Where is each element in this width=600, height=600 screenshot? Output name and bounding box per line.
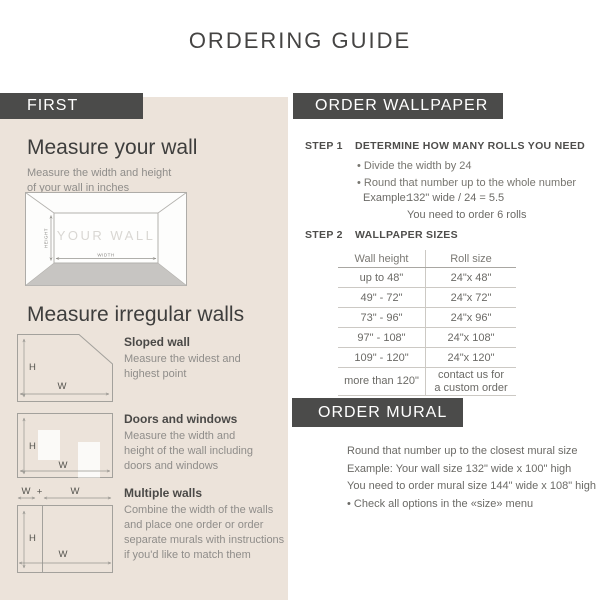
table-row: up to 48" 24"x 48" — [338, 268, 516, 288]
table-cell: 24"x 72" — [426, 288, 516, 307]
page-title: ORDERING GUIDE — [0, 28, 600, 54]
table-cell: contact us for a custom order — [426, 368, 516, 395]
table-cell: 97" - 108" — [338, 328, 426, 347]
table-cell: 24"x 120" — [426, 348, 516, 367]
table-cell: 24"x 96" — [426, 308, 516, 327]
wallpaper-sizes-table: Wall height Roll size up to 48" 24"x 48"… — [338, 250, 516, 396]
height-label: HEIGHT — [44, 228, 49, 248]
multiple-h-label: H — [29, 533, 36, 544]
step1-label: STEP 1 — [305, 140, 343, 152]
floor-shape — [26, 263, 187, 286]
doors-windows-diagram: H W — [17, 413, 113, 478]
order-wallpaper-band: ORDER WALLPAPER — [293, 93, 503, 119]
step1-bullet-2: • Round that number up to the whole numb… — [357, 175, 576, 192]
table-row: more than 120" contact us for a custom o… — [338, 368, 516, 396]
table-header-roll-size: Roll size — [426, 250, 516, 267]
sloped-wall-label: Sloped wall — [124, 335, 190, 349]
doors-w-label: W — [59, 460, 68, 471]
mural-line-1: Round that number up to the closest mura… — [347, 443, 596, 461]
multiple-walls-body: Combine the width of the walls and place… — [124, 503, 284, 563]
table-cell: up to 48" — [338, 268, 426, 287]
measure-wall-heading: Measure your wall — [27, 136, 197, 160]
wall-perspective-diagram: YOUR WALL HEIGHT WIDTH — [25, 192, 187, 286]
step1-example-value: 132" wide / 24 = 5.5 — [407, 192, 504, 204]
first-section-band: FIRST — [0, 93, 143, 119]
sloped-w-label: W — [58, 381, 67, 392]
width-label: WIDTH — [97, 253, 114, 258]
order-mural-band: ORDER MURAL — [292, 398, 463, 427]
mural-instructions: Round that number up to the closest mura… — [347, 443, 596, 513]
step1-title: DETERMINE HOW MANY ROLLS YOU NEED — [355, 140, 585, 152]
mural-line-4: • Check all options in the «size» menu — [347, 496, 596, 514]
table-cell: 24"x 108" — [426, 328, 516, 347]
doors-h-label: H — [29, 441, 36, 452]
table-row: 49" - 72" 24"x 72" — [338, 288, 516, 308]
order-mural-label: ORDER MURAL — [318, 404, 447, 422]
mural-line-2: Example: Your wall size 132" wide x 100"… — [347, 461, 596, 479]
table-cell: more than 120" — [338, 368, 426, 395]
table-header-row: Wall height Roll size — [338, 250, 516, 268]
multiple-walls-diagram: W + W H W — [17, 485, 113, 575]
table-cell: 73" - 96" — [338, 308, 426, 327]
step1-example-note: You need to order 6 rolls — [407, 209, 526, 221]
table-row: 109" - 120" 24"x 120" — [338, 348, 516, 368]
sloped-h-label: H — [29, 362, 36, 373]
multiple-walls-label: Multiple walls — [124, 486, 202, 500]
sloped-wall-body: Measure the widest and highest point — [124, 352, 241, 382]
order-wallpaper-label: ORDER WALLPAPER — [315, 97, 488, 115]
window-shape — [38, 430, 60, 460]
step1-bullet-list: • Divide the width by 24 • Round that nu… — [357, 158, 576, 192]
door-shape — [78, 442, 100, 478]
step1-bullet-1: • Divide the width by 24 — [357, 158, 576, 175]
sloped-wall-diagram: H W — [17, 334, 113, 402]
table-row: 73" - 96" 24"x 96" — [338, 308, 516, 328]
table-row: 97" - 108" 24"x 108" — [338, 328, 516, 348]
table-cell: 24"x 48" — [426, 268, 516, 287]
doors-windows-label: Doors and windows — [124, 412, 237, 426]
irregular-walls-heading: Measure irregular walls — [27, 303, 244, 327]
step2-label: STEP 2 — [305, 229, 343, 241]
multiple-wbottom-label: W — [59, 549, 68, 560]
ordering-guide-page: ORDERING GUIDE FIRST ORDER WALLPAPER ORD… — [0, 0, 600, 600]
first-band-label: FIRST — [27, 97, 78, 115]
mural-line-3: You need to order mural size 144" wide x… — [347, 478, 596, 496]
step2-title: WALLPAPER SIZES — [355, 229, 458, 241]
table-cell: 49" - 72" — [338, 288, 426, 307]
multiple-w1-label: W — [22, 486, 31, 497]
table-header-wall-height: Wall height — [338, 250, 426, 267]
your-wall-label: YOUR WALL — [57, 228, 156, 243]
multiple-w2-label: W — [71, 486, 80, 497]
table-cell: 109" - 120" — [338, 348, 426, 367]
multiple-plus-label: + — [37, 487, 43, 498]
doors-windows-body: Measure the width and height of the wall… — [124, 429, 253, 474]
step1-example-label: Example: — [363, 192, 409, 204]
